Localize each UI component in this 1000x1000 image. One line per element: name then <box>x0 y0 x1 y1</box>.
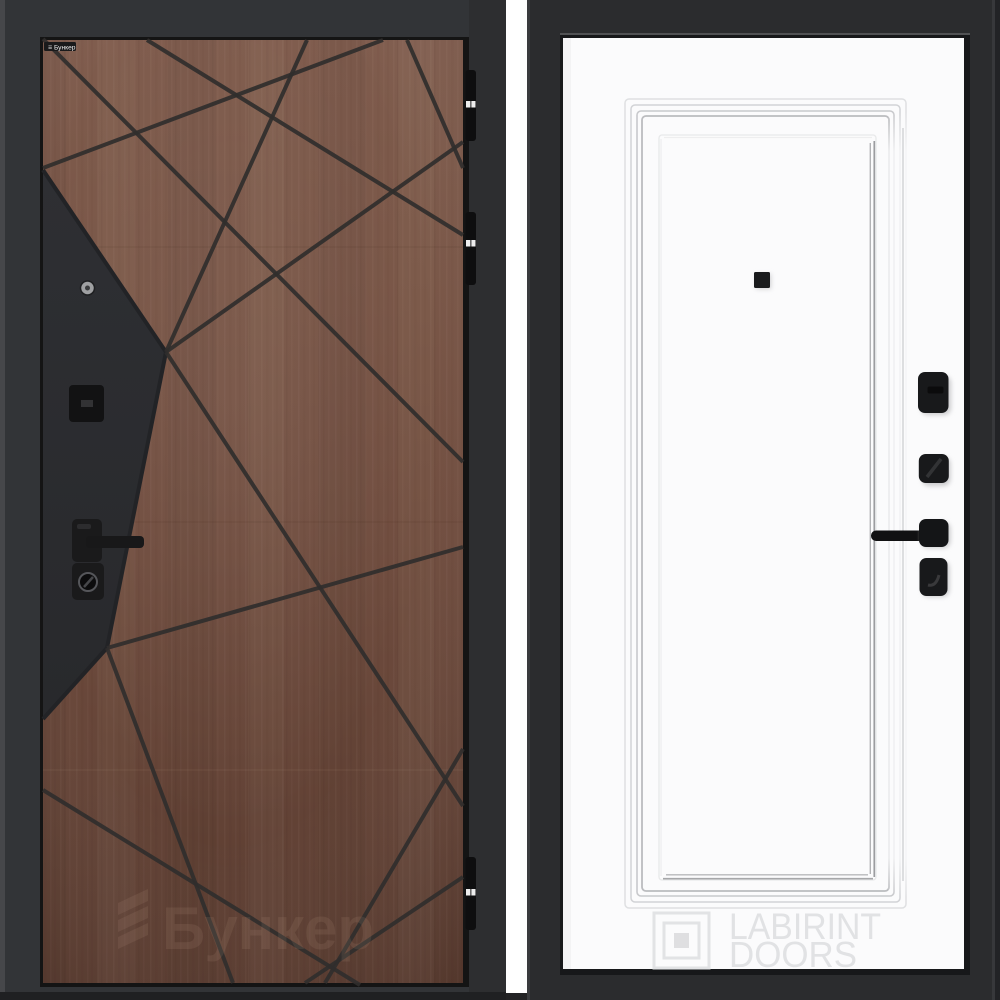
svg-text:Бункер: Бункер <box>162 895 374 962</box>
svg-text:≡: ≡ <box>48 45 52 52</box>
svg-text:Бункер: Бункер <box>54 44 76 51</box>
svg-text:DOORS: DOORS <box>729 934 857 975</box>
